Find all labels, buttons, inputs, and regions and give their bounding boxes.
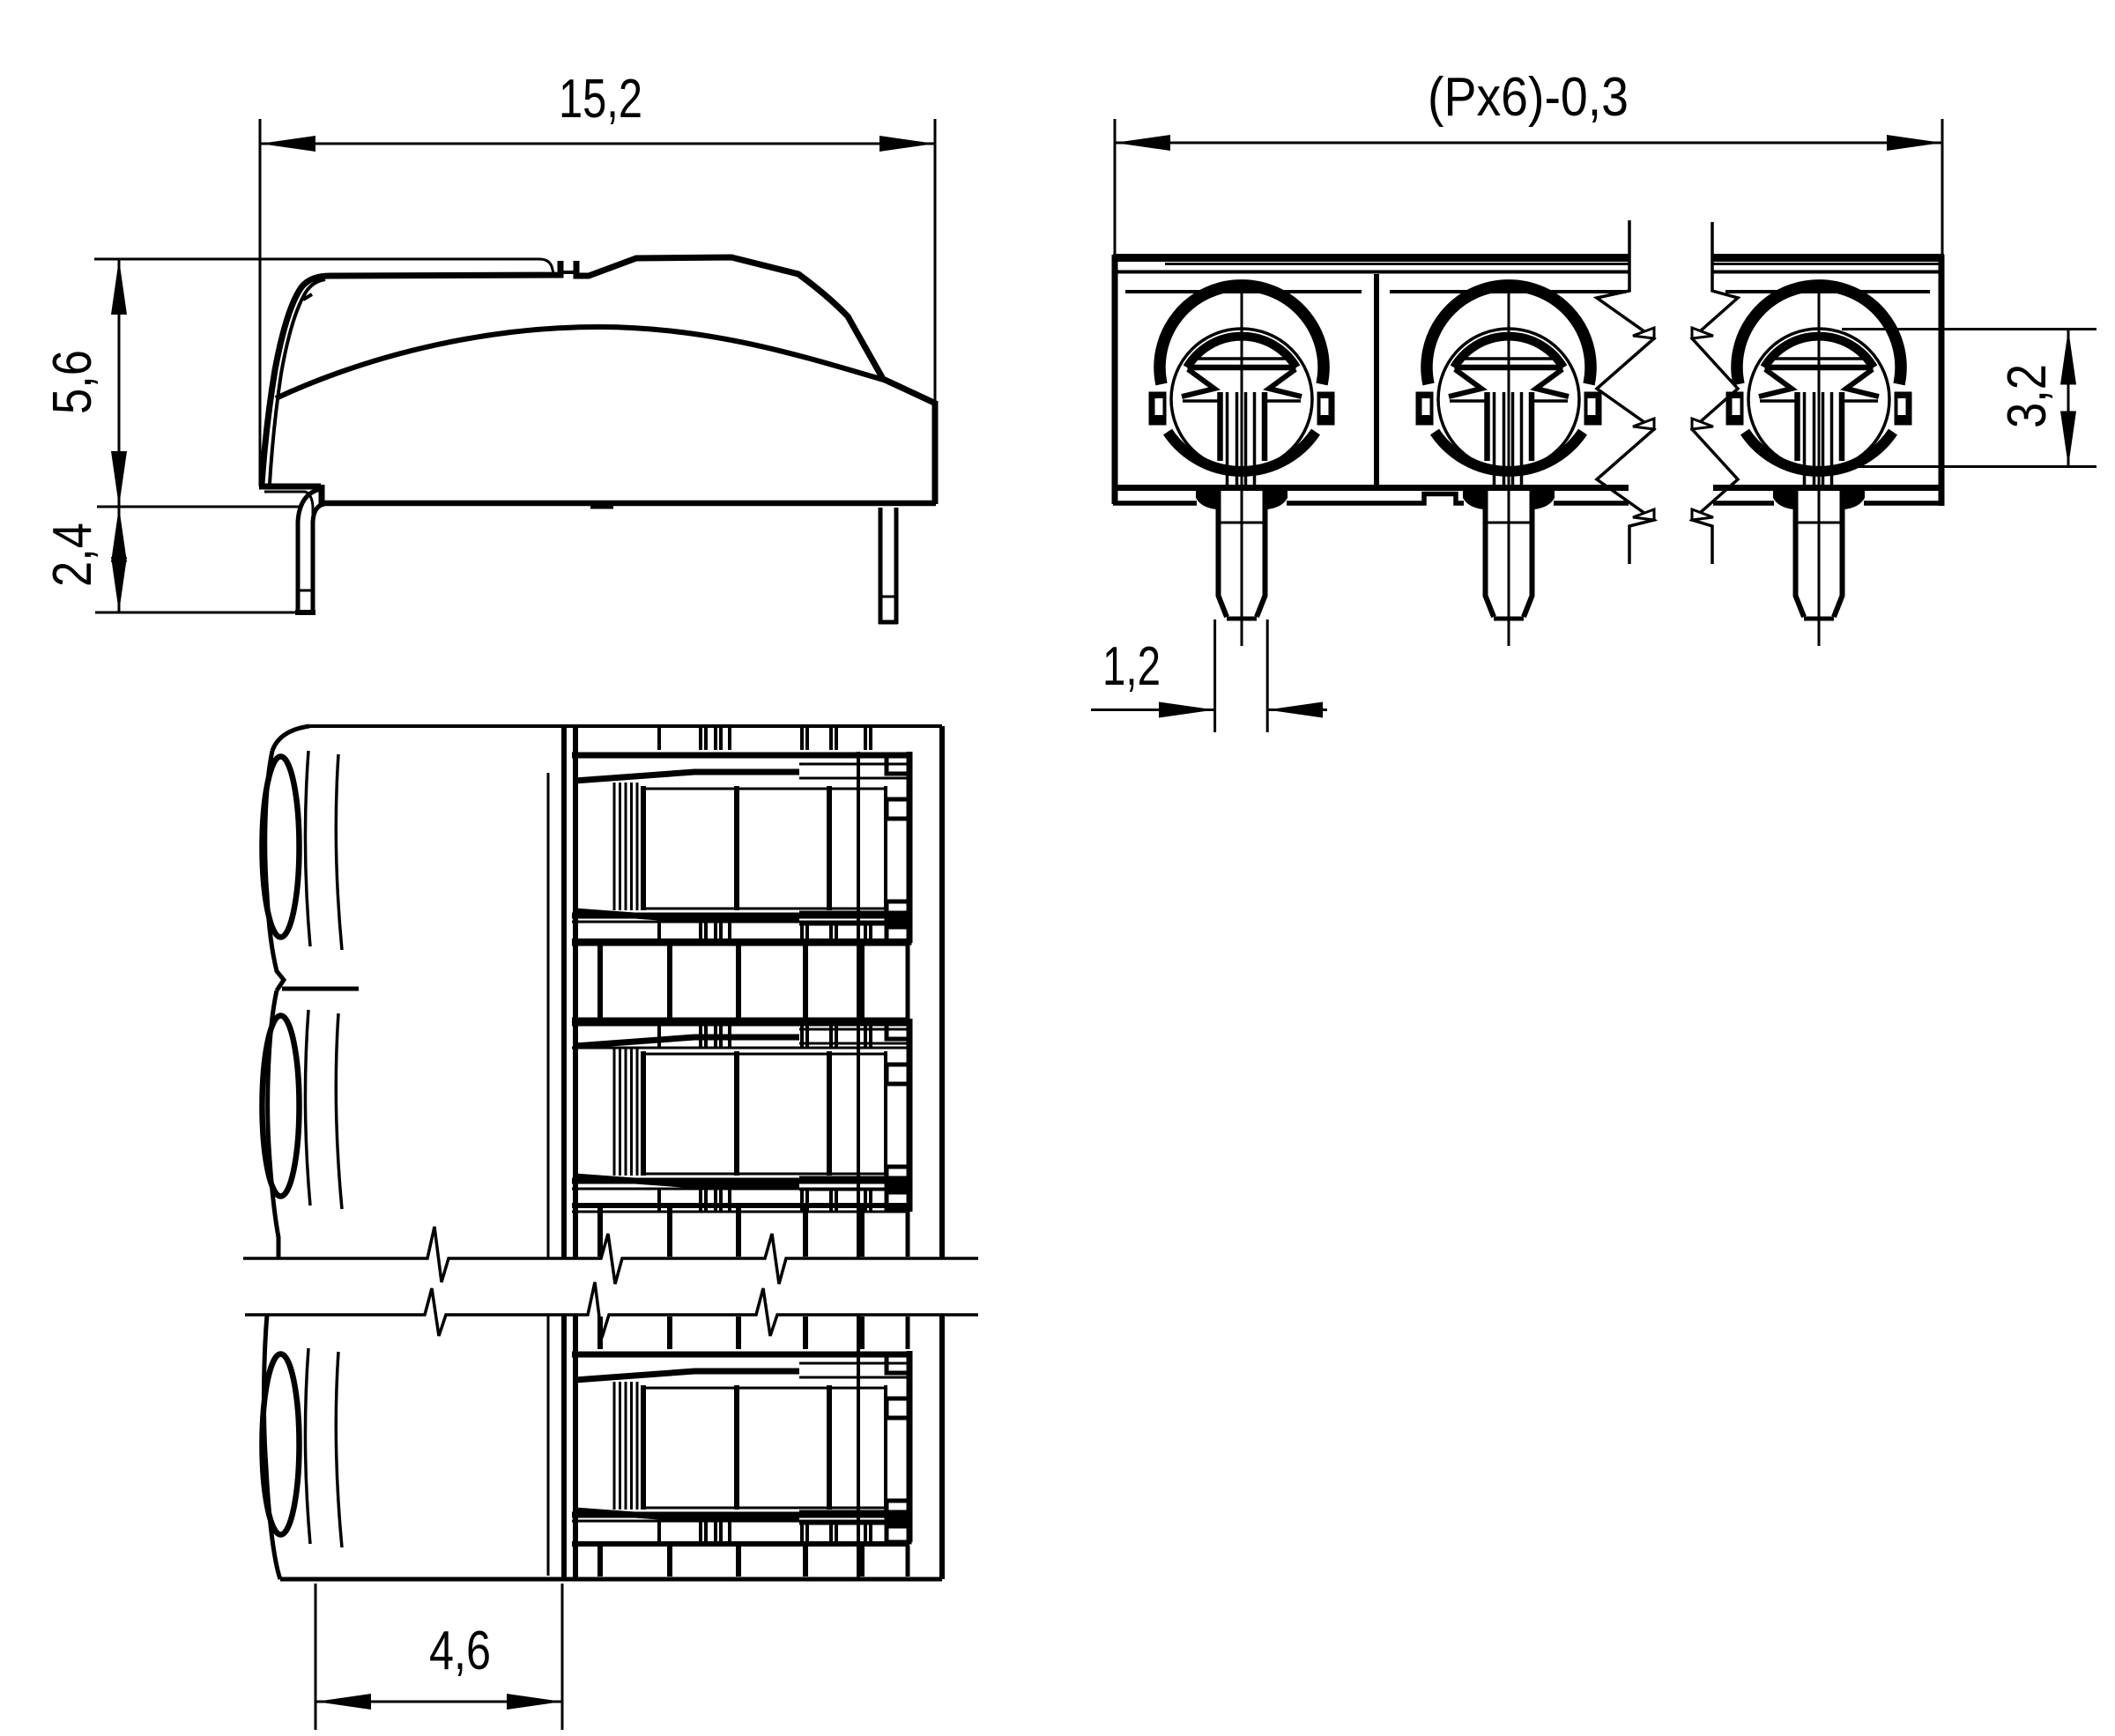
svg-text:(Px6)-0,3: (Px6)-0,3: [1428, 67, 1629, 128]
svg-text:4,6: 4,6: [429, 1621, 491, 1681]
svg-text:15,2: 15,2: [559, 69, 642, 130]
svg-text:3,2: 3,2: [1997, 364, 2058, 428]
svg-text:1,2: 1,2: [1102, 636, 1161, 697]
svg-text:2,4: 2,4: [42, 523, 103, 587]
svg-text:5,6: 5,6: [42, 350, 103, 414]
